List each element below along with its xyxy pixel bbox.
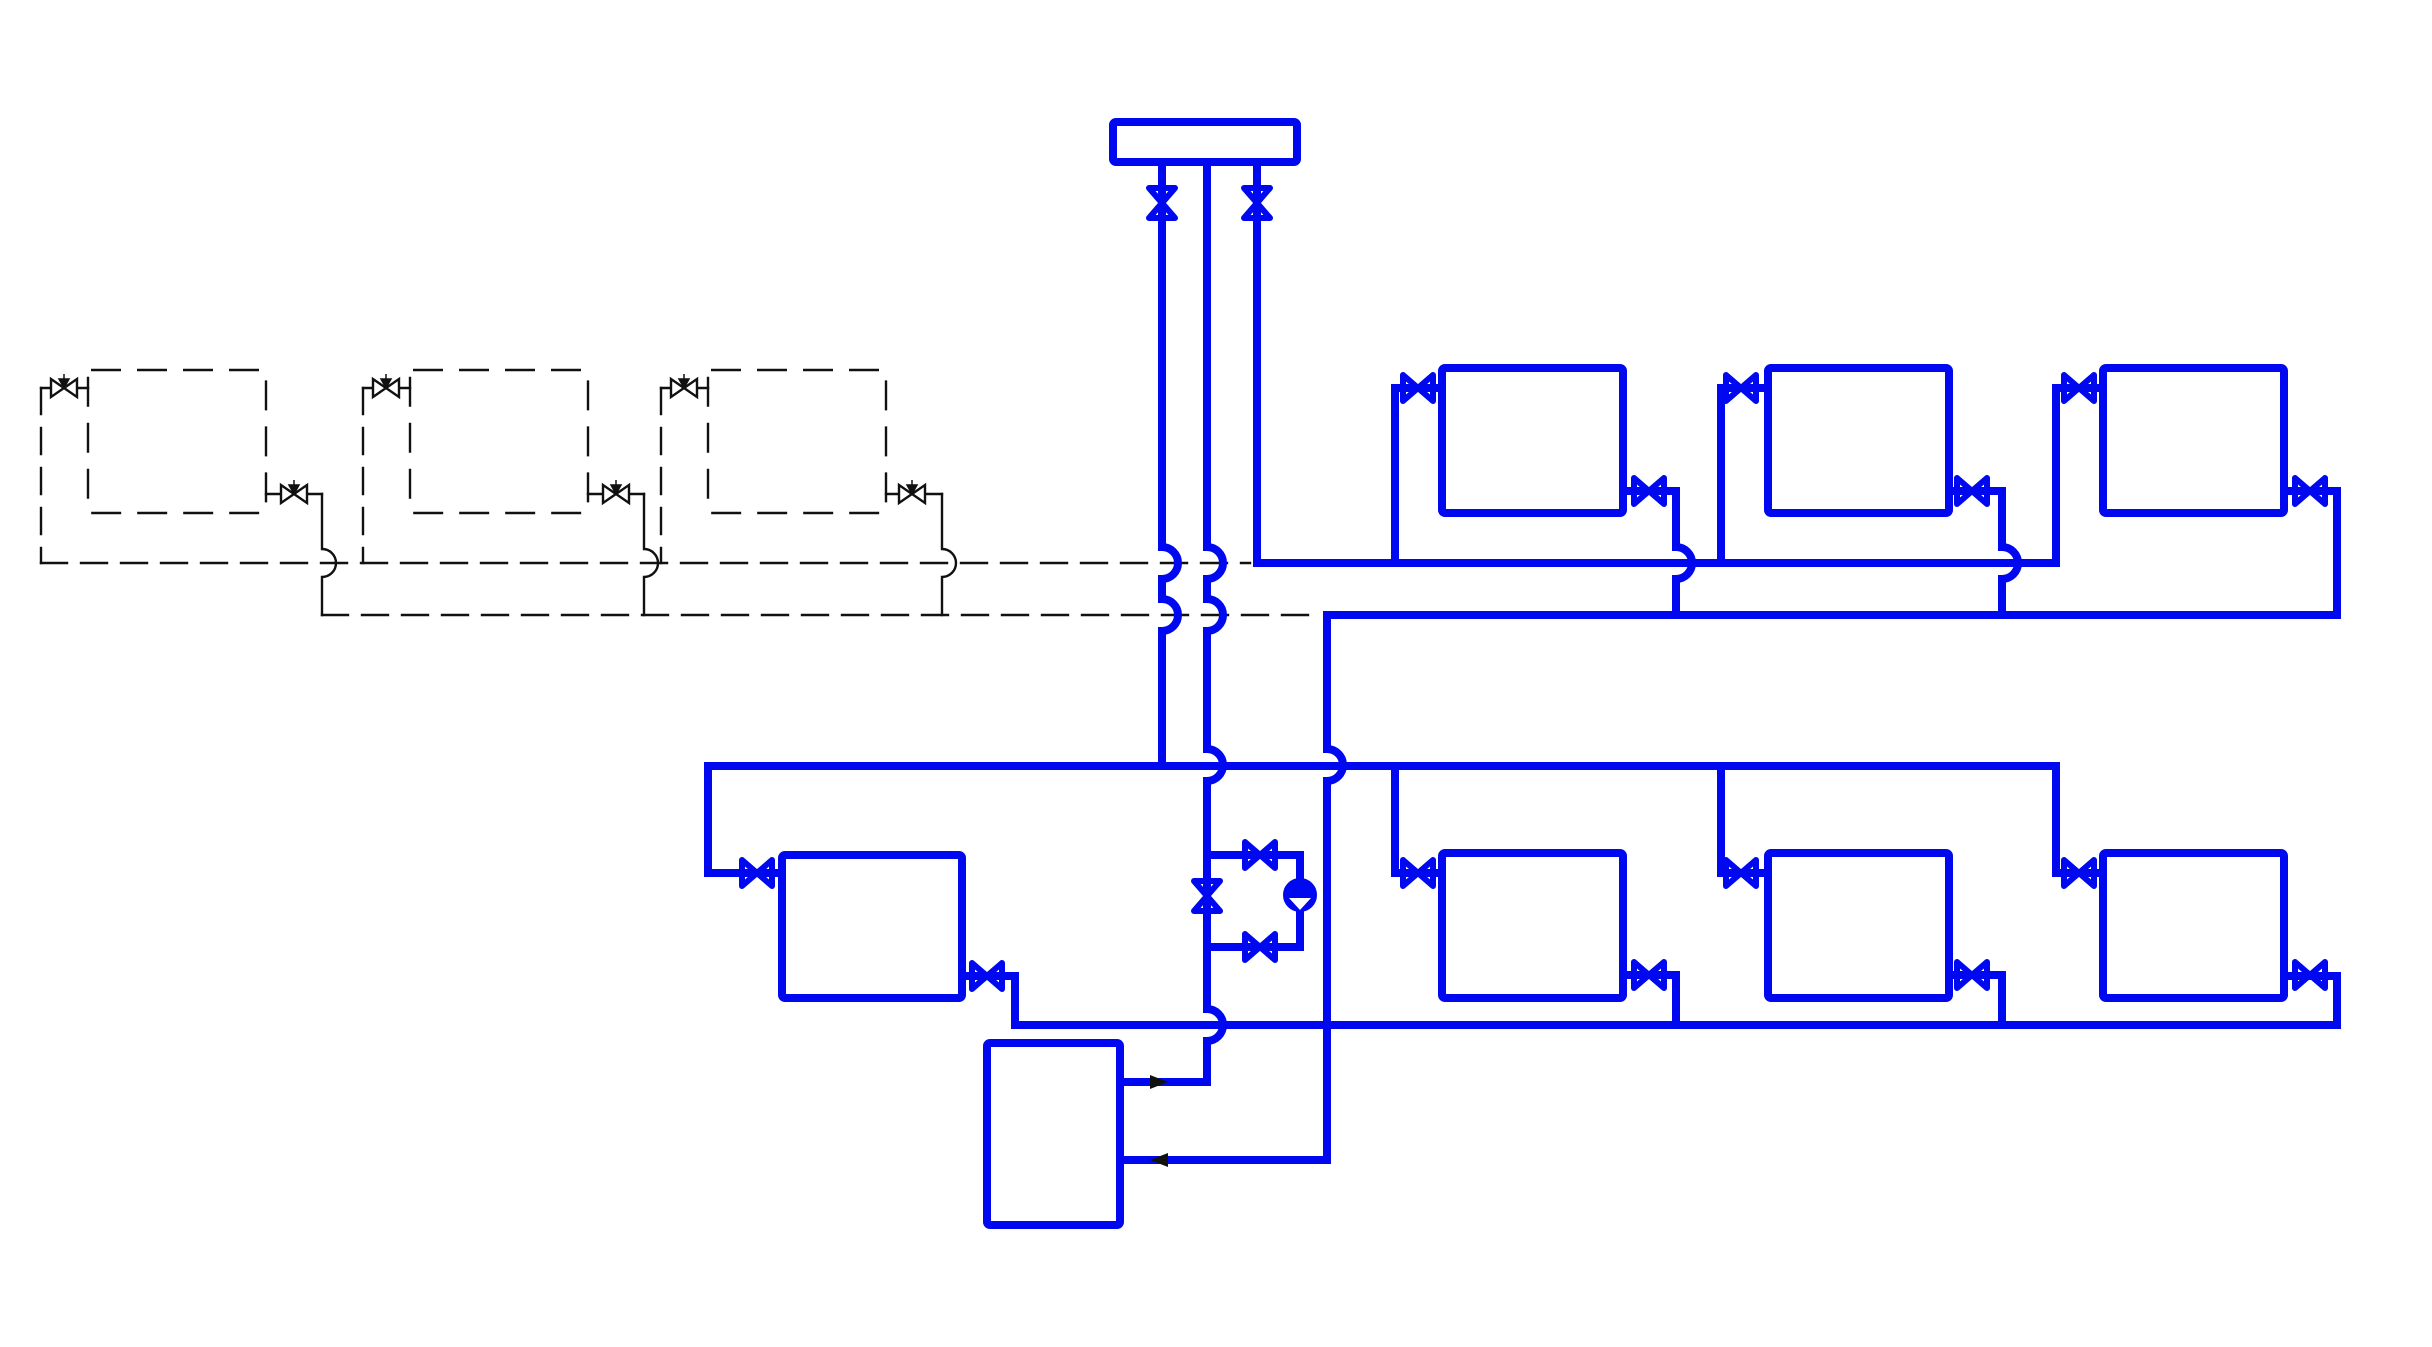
drawing-background xyxy=(0,0,2432,1347)
heating-schematic xyxy=(0,0,2432,1347)
cad-drawing-canvas xyxy=(0,0,2432,1347)
